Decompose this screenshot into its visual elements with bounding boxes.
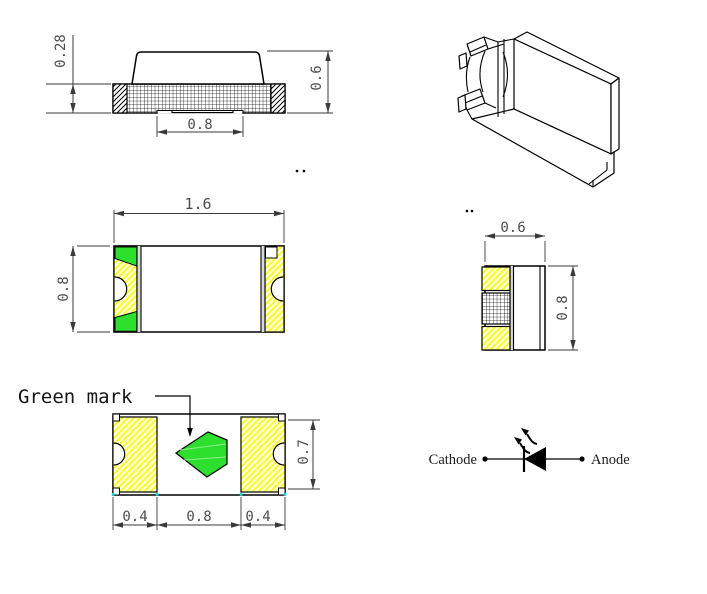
anode-label: Anode (591, 452, 630, 468)
side-view-left-terminal (113, 84, 127, 113)
dim-pad-height: 0.7 (296, 439, 312, 464)
polarity-symbol: Cathode Anode (429, 428, 630, 472)
dim-06e-extlines (485, 241, 545, 262)
end-view-center-terminal (482, 293, 510, 324)
isometric-view (458, 32, 619, 187)
cathode-node (482, 456, 487, 461)
iso-bottom-plate (458, 95, 466, 112)
green-mark-label: Green mark (18, 386, 133, 408)
dim-pad-width: 0.8 (187, 117, 212, 133)
side-view-substrate (113, 84, 285, 113)
top-view-right-joint (261, 246, 265, 332)
top-view-corner-notch (266, 247, 278, 258)
dim-base-height: 0.28 (53, 34, 69, 68)
side-view-lens-body (132, 52, 264, 84)
dim-08t-extlines (77, 246, 110, 332)
drawing-svg: 0.28 0.6 0.8 (0, 0, 707, 594)
diode-triangle-icon (524, 447, 546, 471)
bottom-view: Green mark 0.4 0.8 0.4 0.7 (18, 386, 320, 530)
iso-top-plate (459, 53, 467, 69)
dim-left-pad: 0.4 (122, 509, 147, 525)
side-view-right-terminal (271, 84, 285, 113)
end-view-top-pad (482, 267, 510, 291)
dim-right-pad: 0.4 (245, 509, 270, 525)
dim-center-pad: 0.8 (186, 509, 211, 525)
dim-end-width: 0.6 (500, 220, 525, 236)
dim-width: 0.8 (56, 276, 72, 301)
side-view: 0.28 0.6 0.8 (46, 34, 333, 137)
end-view: 0.6 0.8 (482, 220, 578, 350)
stray-dots (296, 170, 474, 213)
top-view: 1.6 0.8 (56, 195, 284, 332)
led-package-drawing: 0.28 0.6 0.8 (0, 0, 707, 594)
dim-total-height: 0.6 (309, 65, 325, 90)
iso-top-tab (467, 37, 488, 56)
light-emission-arrows-icon (514, 428, 537, 453)
end-view-bottom-pad (482, 327, 510, 351)
dim-028-extlines (46, 84, 111, 113)
cathode-label: Cathode (429, 452, 477, 468)
iso-body-edges (498, 39, 514, 117)
anode-node (579, 456, 584, 461)
dim-end-height: 0.8 (555, 295, 571, 320)
top-view-left-joint (137, 246, 141, 332)
dim-length: 1.6 (184, 195, 211, 213)
iso-castellation-groove (466, 51, 507, 97)
iso-end-face (611, 78, 619, 154)
dim-16-extlines (114, 210, 284, 243)
